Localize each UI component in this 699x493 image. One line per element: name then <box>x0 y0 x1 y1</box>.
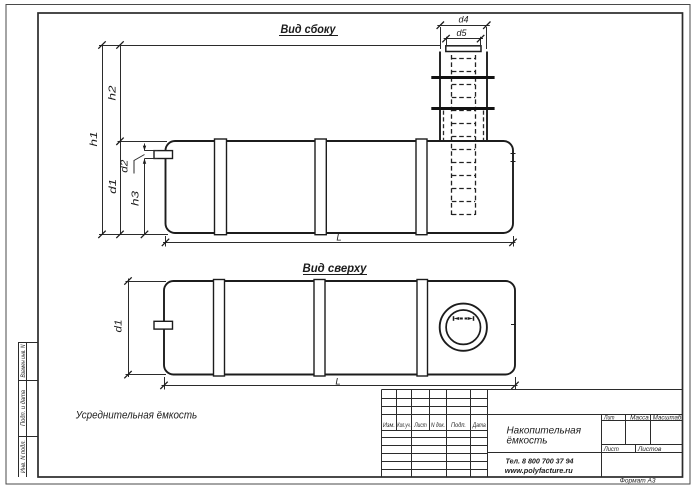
svg-text:Масса: Масса <box>630 415 649 422</box>
svg-text:d1: d1 <box>107 179 119 194</box>
svg-text:www.polyfacture.ru: www.polyfacture.ru <box>505 466 574 475</box>
svg-text:Кол.уч.: Кол.уч. <box>397 423 411 429</box>
svg-text:d5: d5 <box>456 28 467 38</box>
svg-text:Листов: Листов <box>637 446 662 453</box>
svg-text:ёмкость: ёмкость <box>507 435 548 447</box>
svg-text:Лит: Лит <box>603 415 614 422</box>
svg-text:Лист: Лист <box>603 446 619 453</box>
svg-text:h1: h1 <box>88 132 100 147</box>
svg-text:Формат А3: Формат А3 <box>620 478 656 485</box>
svg-text:Изм.: Изм. <box>383 423 395 429</box>
svg-text:d4: d4 <box>458 15 468 25</box>
svg-text:Масштаб: Масштаб <box>653 415 682 422</box>
svg-text:Инв. N подл.: Инв. N подл. <box>21 440 27 473</box>
svg-text:Подп. и дата: Подп. и дата <box>21 389 27 426</box>
svg-text:L: L <box>335 376 340 387</box>
svg-text:Лист: Лист <box>414 423 427 429</box>
svg-text:d1: d1 <box>114 320 125 333</box>
svg-text:Дата: Дата <box>472 423 486 429</box>
svg-text:Усреднительная ёмкость: Усреднительная ёмкость <box>75 410 198 422</box>
svg-text:Тел. 8 800 700 37 94: Тел. 8 800 700 37 94 <box>506 457 574 466</box>
svg-text:Вид сверху: Вид сверху <box>303 261 368 275</box>
svg-text:h2: h2 <box>107 85 119 100</box>
svg-text:Подп.: Подп. <box>451 423 466 429</box>
svg-text:Взамен инв. N: Взамен инв. N <box>21 344 27 378</box>
svg-text:Вид сбоку: Вид сбоку <box>281 22 337 36</box>
svg-text:N док.: N док. <box>431 423 445 429</box>
svg-text:h3: h3 <box>130 191 142 206</box>
svg-text:d2: d2 <box>120 159 131 173</box>
svg-text:L: L <box>336 233 341 244</box>
